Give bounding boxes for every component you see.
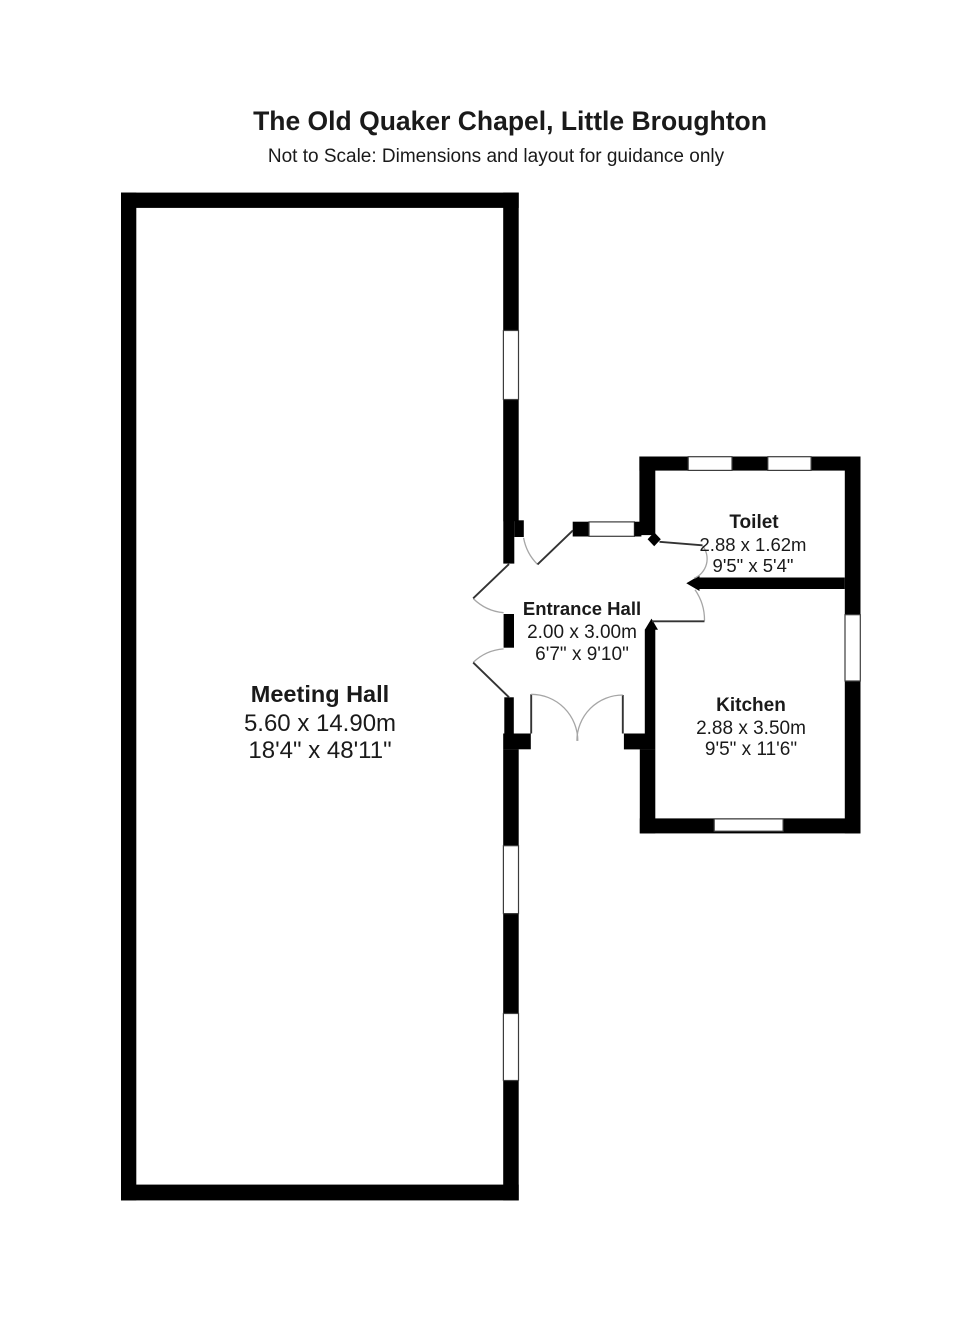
svg-text:Meeting Hall: Meeting Hall [251, 681, 389, 707]
svg-text:Not to Scale: Dimensions and l: Not to Scale: Dimensions and layout for … [268, 146, 725, 167]
svg-text:2.00 x 3.00m: 2.00 x 3.00m [527, 622, 637, 643]
svg-text:2.88 x 1.62m: 2.88 x 1.62m [700, 534, 807, 555]
svg-text:2.88 x 3.50m: 2.88 x 3.50m [696, 718, 806, 739]
svg-text:18'4" x 48'11": 18'4" x 48'11" [248, 737, 391, 764]
svg-text:Toilet: Toilet [729, 512, 779, 533]
svg-text:5.60 x 14.90m: 5.60 x 14.90m [244, 710, 396, 737]
svg-text:9'5" x 11'6": 9'5" x 11'6" [705, 739, 797, 760]
svg-text:Entrance Hall: Entrance Hall [523, 598, 641, 619]
svg-text:Kitchen: Kitchen [716, 695, 786, 716]
svg-text:6'7" x 9'10": 6'7" x 9'10" [535, 644, 629, 665]
svg-text:9'5" x 5'4": 9'5" x 5'4" [713, 555, 794, 576]
svg-text:The Old Quaker Chapel, Little: The Old Quaker Chapel, Little Broughton [253, 106, 767, 136]
